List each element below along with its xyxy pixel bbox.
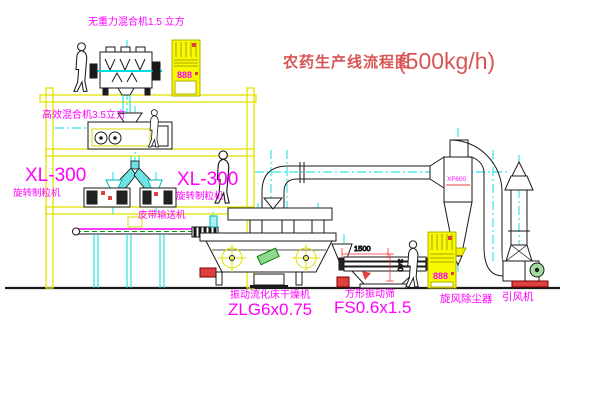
label-cyclone: 旋风除尘器 bbox=[440, 292, 493, 305]
control-cabinet-lower: 888 bbox=[428, 232, 456, 288]
label-xl-right-model: XL-300 bbox=[177, 169, 238, 190]
label-top-mixer: 无重力混合机1.5 立方 bbox=[88, 15, 185, 28]
label-dryer-model: ZLG6x0.75 bbox=[228, 300, 312, 319]
cad-flow-diagram: 888 bbox=[0, 0, 600, 403]
cabinet-display: 888 bbox=[433, 271, 448, 281]
induced-draft-fan bbox=[503, 261, 548, 287]
label-xl-left-model: XL-300 bbox=[25, 165, 86, 186]
high-efficiency-mixer bbox=[88, 113, 172, 168]
cabinet-display: 888 bbox=[177, 70, 192, 80]
label-fan: 引风机 bbox=[502, 290, 534, 303]
control-cabinet-upper: 888 bbox=[172, 40, 200, 96]
belt-conveyor bbox=[73, 217, 200, 288]
person-figure bbox=[406, 241, 418, 287]
cyclone-tag: XF600 bbox=[447, 176, 467, 183]
label-xl-left-name: 旋转制粒机 bbox=[13, 187, 61, 199]
label-belt-conveyor: 皮带输送机 bbox=[138, 209, 186, 221]
label-screen-model: FS0.6x1.5 bbox=[334, 298, 412, 317]
diagram-canvas: 888 bbox=[0, 0, 600, 403]
label-mid-mixer: 高效混合机3.5立方 bbox=[42, 108, 126, 121]
label-xl-right-name: 旋转制粒机 bbox=[176, 190, 224, 202]
page-title-capacity: (500kg/h) bbox=[398, 48, 495, 74]
dim-length: 1500 bbox=[354, 244, 371, 253]
dim-height: 340 bbox=[396, 259, 405, 272]
person-figure bbox=[74, 43, 87, 92]
page-title-main: 农药生产线流程图 bbox=[282, 53, 411, 71]
